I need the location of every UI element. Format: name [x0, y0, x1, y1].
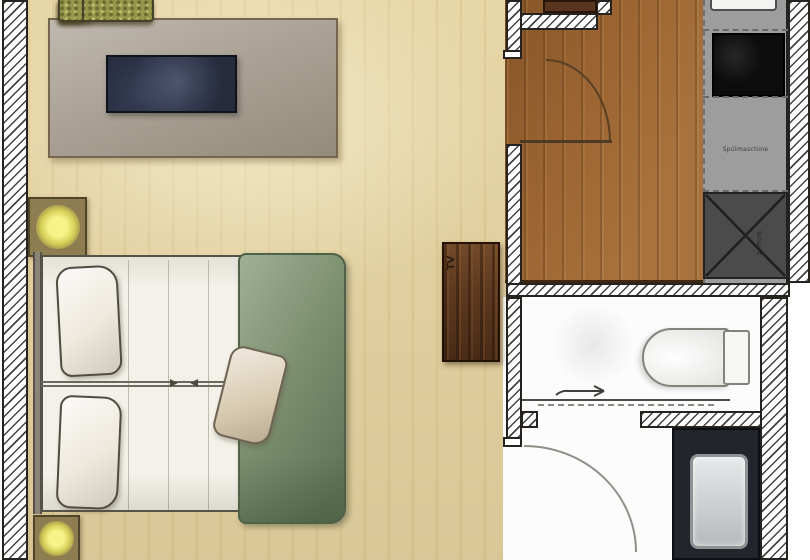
service-shaft: Schacht: [703, 192, 788, 279]
shaft-label: Schacht: [732, 231, 762, 243]
wall-entry-top: [520, 13, 598, 30]
wall-bathroom-left: [506, 297, 522, 439]
tv-cabinet: TV: [442, 242, 500, 362]
sliding-door-track: [522, 399, 730, 401]
pillow: [55, 264, 123, 377]
nightstand: [33, 515, 80, 560]
wall-end-cap: [503, 50, 522, 59]
counter-divider: [703, 96, 788, 98]
coffee-table: [106, 55, 237, 113]
entry-door-leaf: [543, 0, 597, 13]
toilet-tank: [723, 330, 750, 385]
wall-end-cap: [503, 437, 522, 447]
wall-left-exterior: [2, 0, 28, 560]
kitchen-sink: [710, 0, 777, 11]
dishwasher-label: Spülmaschine: [703, 146, 788, 158]
sofa-cushion: [58, 0, 84, 22]
wall-bathroom-right: [760, 297, 788, 560]
cooktop: [712, 33, 785, 97]
vanity-sink: [690, 454, 748, 549]
wall-hall-upper: [506, 0, 522, 52]
lamp-glow-icon: [36, 205, 80, 250]
nightstand: [28, 197, 87, 257]
toilet: [642, 328, 730, 387]
lamp-glow-icon: [39, 521, 73, 555]
sofa-cushions: [58, 0, 318, 22]
counter-divider: [703, 29, 788, 31]
seam-arrow-icon: [170, 379, 178, 387]
vanity-counter: [672, 428, 760, 560]
wall-entry-top-right: [596, 0, 612, 15]
entry-threshold-line: [520, 140, 612, 143]
wall-kitchen-right: [788, 0, 810, 283]
wall-bathroom-middle: [640, 411, 762, 428]
wall-hall-lower: [506, 144, 522, 290]
wall-bathroom-top: [506, 283, 790, 297]
pillow: [56, 395, 123, 511]
tv-label: TV: [446, 251, 460, 275]
seam-arrow-icon: [190, 379, 198, 387]
sliding-door-track-dashes: [538, 404, 714, 406]
wall-sliding-door-jamb: [521, 411, 538, 428]
bed-seam: [41, 381, 242, 387]
floor-plan: TV Spülmaschine Schacht: [0, 0, 810, 560]
